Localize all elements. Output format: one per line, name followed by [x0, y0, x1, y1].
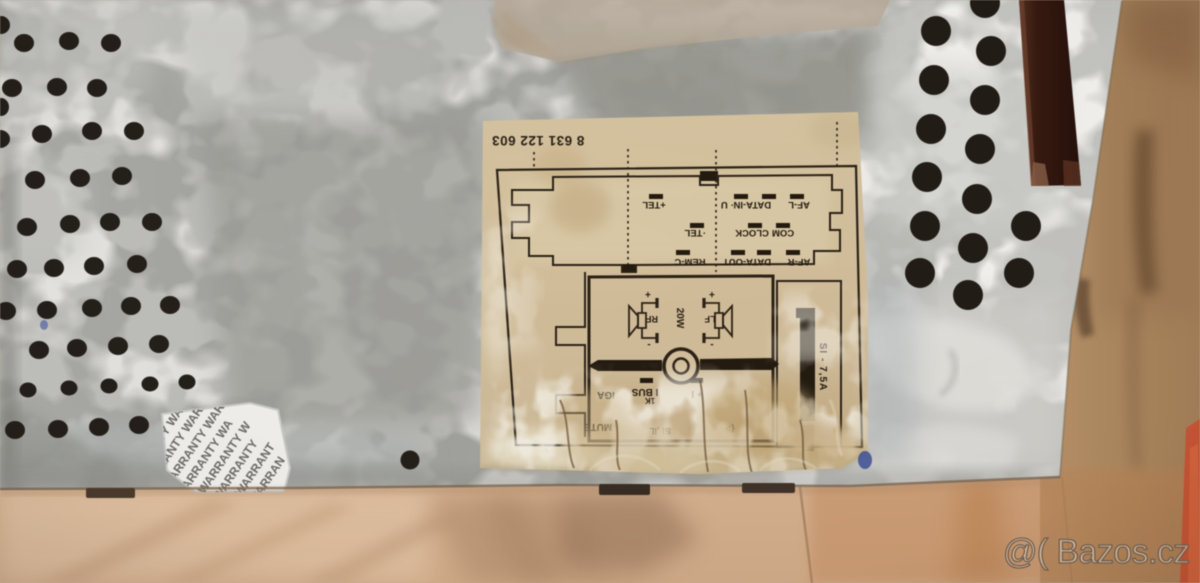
svg-text:@( Bazos.cz: @( Bazos.cz [1003, 533, 1190, 571]
